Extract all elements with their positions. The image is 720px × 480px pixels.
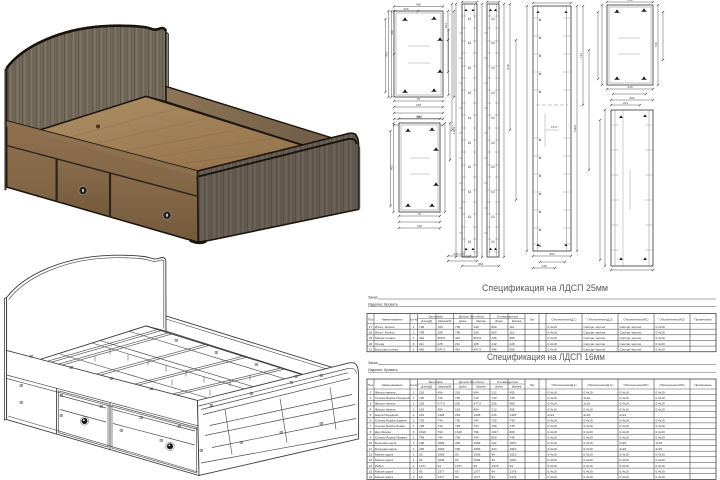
svg-text:744: 744 <box>438 396 443 400</box>
svg-text:Большая царга: Большая царга <box>375 441 397 445</box>
svg-text:Царга Передняя: Царга Передняя <box>375 413 399 417</box>
svg-text:0,4х19: 0,4х19 <box>656 436 665 440</box>
svg-text:Смотри чертеж: Смотри чертеж <box>620 325 642 329</box>
svg-text:963: 963 <box>549 252 554 256</box>
svg-text:0,4х19: 0,4х19 <box>584 424 593 428</box>
svg-text:219: 219 <box>455 413 460 417</box>
svg-text:425: 425 <box>438 342 443 346</box>
svg-text:0,4х19: 0,4х19 <box>548 336 557 340</box>
svg-text:0,4х19: 0,4х19 <box>656 452 665 456</box>
svg-text:0,4х19: 0,4х19 <box>620 390 629 394</box>
svg-text:1909: 1909 <box>474 452 481 456</box>
svg-text:1910: 1910 <box>510 447 517 451</box>
svg-text:Ширина(W): Ширина(W) <box>438 386 451 389</box>
svg-text:219: 219 <box>455 407 460 411</box>
svg-text:Дно Ящика: Дно Ящика <box>375 430 391 434</box>
svg-text:455: 455 <box>510 407 515 411</box>
svg-text:Смотри чертеж: Смотри чертеж <box>584 342 606 346</box>
svg-text:0,4х19: 0,4х19 <box>548 390 557 394</box>
svg-text:799: 799 <box>455 436 460 440</box>
svg-text:1617: 1617 <box>492 430 499 434</box>
svg-text:0,4х19: 0,4х19 <box>656 419 665 423</box>
svg-text:745: 745 <box>510 396 515 400</box>
svg-text:1: 1 <box>413 436 415 440</box>
svg-text:418: 418 <box>417 224 422 228</box>
svg-text:0,4х19: 0,4х19 <box>620 430 629 434</box>
svg-text:93: 93 <box>419 475 423 479</box>
svg-text:0,4х19: 0,4х19 <box>548 342 557 346</box>
svg-text:109: 109 <box>474 330 479 334</box>
svg-text:446: 446 <box>492 336 497 340</box>
svg-text:2х19: 2х19 <box>620 441 627 445</box>
svg-text:0,4х19: 0,4х19 <box>584 436 593 440</box>
svg-text:Заказ:: Заказ: <box>368 296 378 300</box>
svg-text:446: 446 <box>492 347 497 351</box>
svg-text:219: 219 <box>455 390 460 394</box>
svg-text:0,4х19: 0,4х19 <box>584 390 593 394</box>
svg-text:1909: 1909 <box>474 447 481 451</box>
svg-text:Поз: Поз <box>368 318 374 322</box>
svg-text:730: 730 <box>455 396 460 400</box>
svg-text:109: 109 <box>438 330 443 334</box>
svg-text:0,4х19: 0,4х19 <box>656 475 665 479</box>
svg-text:Стенка Ящика Правая: Стенка Ящика Правая <box>375 436 407 440</box>
svg-text:0,4х19: 0,4х19 <box>620 436 629 440</box>
svg-text:1: 1 <box>413 464 415 468</box>
svg-text:0,4х19: 0,4х19 <box>548 464 557 468</box>
svg-text:261: 261 <box>444 23 448 28</box>
svg-text:0,4х19: 0,4х19 <box>548 402 557 406</box>
svg-text:14: 14 <box>369 464 373 468</box>
svg-text:0,4х19: 0,4х19 <box>620 475 629 479</box>
svg-text:1: 1 <box>413 396 415 400</box>
svg-text:1: 1 <box>413 336 415 340</box>
svg-text:109: 109 <box>438 325 443 329</box>
svg-text:799: 799 <box>419 330 424 334</box>
svg-text:212: 212 <box>492 342 497 346</box>
svg-text:1428: 1428 <box>438 413 445 417</box>
svg-text:2: 2 <box>370 396 372 400</box>
svg-text:1: 1 <box>413 413 415 417</box>
svg-text:1426: 1426 <box>510 413 517 417</box>
svg-text:94: 94 <box>492 469 496 473</box>
svg-text:Длина: Длина <box>495 320 503 323</box>
svg-text:1378: 1378 <box>492 464 499 468</box>
svg-text:454: 454 <box>474 407 479 411</box>
svg-text:Обозначение(W2): Обозначение(W2) <box>659 318 684 322</box>
svg-text:730: 730 <box>492 396 497 400</box>
svg-text:Обозначение(Д,1): Обозначение(Д,1) <box>551 318 576 322</box>
svg-text:1428: 1428 <box>474 413 481 417</box>
svg-text:Примечание: Примечание <box>694 383 712 387</box>
svg-text:0,4х19: 0,4х19 <box>548 430 557 434</box>
svg-text:0,4х19: 0,4х19 <box>656 464 665 468</box>
svg-text:730: 730 <box>455 419 460 423</box>
svg-text:9: 9 <box>370 436 372 440</box>
svg-text:0,4х19: 0,4х19 <box>656 430 665 434</box>
svg-text:Готовая деталь: Готовая деталь <box>497 380 519 384</box>
svg-text:18: 18 <box>369 330 373 334</box>
svg-text:Большая царга: Большая царга <box>375 447 397 451</box>
svg-text:0,4х19: 0,4х19 <box>656 469 665 473</box>
svg-text:0,4х19: 0,4х19 <box>548 424 557 428</box>
svg-text:1910: 1910 <box>510 441 517 445</box>
svg-text:947,5: 947,5 <box>438 347 446 351</box>
svg-text:Стенка Ящика Левая: Стенка Ящика Левая <box>375 424 405 428</box>
svg-text:20: 20 <box>369 342 373 346</box>
svg-text:1616: 1616 <box>455 430 462 434</box>
svg-text:0,4х19: 0,4х19 <box>584 458 593 462</box>
svg-text:418: 418 <box>417 115 422 119</box>
svg-text:Фальш-панель: Фальш-панель <box>375 407 396 411</box>
svg-text:0,4х19: 0,4х19 <box>584 469 593 473</box>
svg-text:477,5: 477,5 <box>438 402 446 406</box>
svg-text:15: 15 <box>369 469 373 473</box>
svg-text:0,4х19: 0,4х19 <box>548 407 557 411</box>
svg-text:430: 430 <box>390 30 394 35</box>
svg-text:93: 93 <box>455 458 459 462</box>
svg-text:442: 442 <box>455 336 460 340</box>
svg-text:Малая царга: Малая царга <box>375 458 393 462</box>
svg-text:0,4х19: 0,4х19 <box>656 407 665 411</box>
svg-text:0,4х19: 0,4х19 <box>620 396 629 400</box>
svg-text:2х19: 2х19 <box>620 447 627 451</box>
svg-text:238: 238 <box>419 441 424 445</box>
svg-text:Обозначение(Д,2): Обозначение(Д,2) <box>587 383 612 387</box>
svg-text:6: 6 <box>370 419 372 423</box>
svg-text:11: 11 <box>369 447 372 451</box>
svg-text:442: 442 <box>455 347 460 351</box>
svg-text:906: 906 <box>510 336 515 340</box>
svg-text:1909: 1909 <box>573 125 577 132</box>
svg-text:2х19: 2х19 <box>548 413 555 417</box>
svg-text:219: 219 <box>419 413 424 417</box>
svg-text:Кол-во: Кол-во <box>410 319 418 322</box>
svg-text:903,5: 903,5 <box>438 336 446 340</box>
svg-text:1909: 1909 <box>438 452 445 456</box>
svg-text:0,4х19: 0,4х19 <box>620 419 629 423</box>
svg-text:1909: 1909 <box>474 458 481 462</box>
svg-text:744: 744 <box>474 419 479 423</box>
svg-text:219: 219 <box>419 390 424 394</box>
svg-text:1377: 1377 <box>438 469 445 473</box>
svg-text:212: 212 <box>492 390 497 394</box>
svg-text:1377: 1377 <box>419 464 426 468</box>
svg-text:Длина(Д): Длина(Д) <box>421 386 432 389</box>
svg-text:0,4х19: 0,4х19 <box>584 407 593 411</box>
svg-text:110: 110 <box>510 325 515 329</box>
svg-text:Малая царга: Малая царга <box>375 469 393 473</box>
svg-text:Изделие: Кровать: Изделие: Кровать <box>368 303 398 307</box>
svg-text:2х19: 2х19 <box>584 402 591 406</box>
svg-text:Деталь без облиц.: Деталь без облиц. <box>459 380 485 384</box>
svg-text:16: 16 <box>369 475 373 479</box>
svg-text:477,5: 477,5 <box>474 402 482 406</box>
svg-text:0,4х19: 0,4х19 <box>548 396 557 400</box>
svg-text:70: 70 <box>417 97 421 101</box>
svg-text:13: 13 <box>369 458 373 462</box>
svg-text:93: 93 <box>419 458 423 462</box>
svg-text:Обозначение(Д,2): Обозначение(Д,2) <box>587 318 612 322</box>
svg-text:7: 7 <box>370 424 372 428</box>
svg-text:109: 109 <box>474 325 479 329</box>
svg-text:746: 746 <box>654 42 658 47</box>
svg-text:Смотри чертеж: Смотри чертеж <box>620 347 642 351</box>
svg-text:224: 224 <box>492 447 497 451</box>
svg-text:Фальш-панель: Фальш-панель <box>375 390 396 394</box>
svg-text:93: 93 <box>474 464 478 468</box>
svg-text:70: 70 <box>418 212 422 216</box>
svg-text:0,4х19: 0,4х19 <box>620 402 629 406</box>
svg-text:Смотри чертеж: Смотри чертеж <box>620 342 642 346</box>
svg-text:744: 744 <box>474 396 479 400</box>
svg-text:Поз: Поз <box>368 383 374 387</box>
svg-text:1: 1 <box>413 430 415 434</box>
svg-text:1909: 1909 <box>438 447 445 451</box>
svg-text:745: 745 <box>510 424 515 428</box>
svg-text:Наименование: Наименование <box>382 383 403 387</box>
svg-text:455: 455 <box>510 390 515 394</box>
svg-text:0,4х19: 0,4х19 <box>548 441 557 445</box>
svg-text:1910: 1910 <box>510 452 517 456</box>
svg-text:226: 226 <box>492 402 497 406</box>
svg-text:1910: 1910 <box>510 458 517 462</box>
svg-text:2х19: 2х19 <box>620 413 627 417</box>
svg-text:Фальш-панель: Фальш-панель <box>375 402 396 406</box>
svg-text:94: 94 <box>492 458 496 462</box>
svg-text:0,4х19: 0,4х19 <box>656 347 665 351</box>
svg-text:454: 454 <box>438 390 443 394</box>
svg-text:947,5: 947,5 <box>474 347 482 351</box>
svg-text:211: 211 <box>455 342 460 346</box>
svg-text:1: 1 <box>413 447 415 451</box>
svg-text:93: 93 <box>455 475 459 479</box>
svg-text:1: 1 <box>413 325 415 329</box>
svg-text:94: 94 <box>492 475 496 479</box>
svg-text:0,4х19: 0,4х19 <box>584 452 593 456</box>
svg-text:2х19: 2х19 <box>584 413 591 417</box>
svg-text:1417: 1417 <box>551 125 558 129</box>
svg-text:744: 744 <box>438 424 443 428</box>
svg-text:1377: 1377 <box>438 475 445 479</box>
svg-text:0,4х19: 0,4х19 <box>548 452 557 456</box>
svg-text:93: 93 <box>455 469 459 473</box>
svg-text:10: 10 <box>369 441 373 445</box>
svg-text:Заказ:: Заказ: <box>368 361 378 365</box>
svg-text:17: 17 <box>369 325 373 329</box>
svg-text:Готовая деталь: Готовая деталь <box>497 315 519 319</box>
svg-text:Стенка Ящика Задняя: Стенка Ящика Задняя <box>375 419 407 423</box>
svg-text:93: 93 <box>419 469 423 473</box>
svg-text:2х19: 2х19 <box>584 396 591 400</box>
svg-text:2х19: 2х19 <box>656 441 663 445</box>
svg-text:454: 454 <box>438 407 443 411</box>
svg-text:242: 242 <box>492 441 497 445</box>
svg-text:Обозначение(W1): Обозначение(W1) <box>623 318 648 322</box>
svg-text:1909: 1909 <box>474 441 481 445</box>
svg-text:Смотри чертеж: Смотри чертеж <box>620 330 642 334</box>
svg-text:730: 730 <box>492 419 497 423</box>
svg-text:442: 442 <box>419 336 424 340</box>
svg-text:0,4х19: 0,4х19 <box>620 464 629 468</box>
svg-text:Смотри чертеж: Смотри чертеж <box>620 336 642 340</box>
svg-text:0,4х19: 0,4х19 <box>548 469 557 473</box>
svg-text:799: 799 <box>419 424 424 428</box>
svg-text:799: 799 <box>438 430 443 434</box>
svg-text:799: 799 <box>455 325 460 329</box>
svg-text:430: 430 <box>627 85 632 89</box>
svg-text:799: 799 <box>474 430 479 434</box>
svg-text:Длина: Длина <box>459 320 467 323</box>
svg-text:Ширина(W): Ширина(W) <box>438 320 451 323</box>
svg-text:Стенка Ящика Передняя: Стенка Ящика Передняя <box>375 396 411 400</box>
svg-text:1909: 1909 <box>438 441 445 445</box>
svg-text:Смотри чертеж: Смотри чертеж <box>584 325 606 329</box>
svg-text:799: 799 <box>492 424 497 428</box>
svg-text:0,4х19: 0,4х19 <box>656 330 665 334</box>
svg-text:522: 522 <box>629 96 634 100</box>
svg-text:2х19: 2х19 <box>656 447 663 451</box>
svg-text:225: 225 <box>455 402 460 406</box>
svg-text:Смотри чертеж: Смотри чертеж <box>584 336 606 340</box>
svg-text:426: 426 <box>510 342 515 346</box>
svg-text:Длина: Длина <box>459 386 467 389</box>
svg-text:Малая царга: Малая царга <box>375 475 393 479</box>
svg-text:Ширина: Ширина <box>476 320 486 323</box>
svg-text:0,4х19: 0,4х19 <box>656 342 665 346</box>
svg-text:Заготовка: Заготовка <box>429 380 443 384</box>
svg-text:963: 963 <box>478 262 483 266</box>
svg-text:Заготовка: Заготовка <box>429 315 443 319</box>
svg-text:0,4х19: 0,4х19 <box>584 430 593 434</box>
svg-text:0,4х19: 0,4х19 <box>548 325 557 329</box>
svg-text:0,4х19: 0,4х19 <box>620 424 629 428</box>
svg-text:800: 800 <box>492 325 497 329</box>
svg-text:94: 94 <box>510 464 514 468</box>
svg-text:Ширина: Ширина <box>512 320 522 323</box>
svg-text:1909: 1909 <box>452 127 456 134</box>
svg-text:1377: 1377 <box>474 469 481 473</box>
svg-text:425: 425 <box>474 342 479 346</box>
svg-text:0,4х19: 0,4х19 <box>548 419 557 423</box>
svg-text:450: 450 <box>627 0 632 2</box>
svg-text:730: 730 <box>419 396 424 400</box>
svg-text:442: 442 <box>419 347 424 351</box>
svg-text:212: 212 <box>492 407 497 411</box>
svg-text:799: 799 <box>455 330 460 334</box>
svg-text:93: 93 <box>419 452 423 456</box>
svg-text:0,4х19: 0,4х19 <box>584 464 593 468</box>
svg-text:0,4х19: 0,4х19 <box>656 458 665 462</box>
svg-text:225: 225 <box>419 402 424 406</box>
svg-text:1378: 1378 <box>510 475 517 479</box>
svg-text:0,4х19: 0,4х19 <box>548 447 557 451</box>
svg-text:Изделие: Кровать: Изделие: Кровать <box>368 368 398 372</box>
svg-text:Наименование: Наименование <box>382 318 403 322</box>
svg-text:1: 1 <box>413 419 415 423</box>
svg-text:0,4х19: 0,4х19 <box>656 396 665 400</box>
svg-text:799: 799 <box>419 436 424 440</box>
svg-text:238: 238 <box>455 441 460 445</box>
svg-text:1909: 1909 <box>438 458 445 462</box>
svg-text:0,4х19: 0,4х19 <box>548 458 557 462</box>
svg-text:Опора: Опора <box>375 342 384 346</box>
svg-text:Изгол. Колесо: Изгол. Колесо <box>375 330 395 334</box>
svg-text:Ширина: Ширина <box>512 386 522 389</box>
svg-text:19: 19 <box>369 336 373 340</box>
svg-text:3: 3 <box>370 402 372 406</box>
svg-text:Обозначение(W1): Обозначение(W1) <box>623 383 648 387</box>
svg-text:0,4х19: 0,4х19 <box>584 441 593 445</box>
svg-text:446 X10: 446 X10 <box>453 252 465 256</box>
svg-text:Примечание: Примечание <box>694 318 712 322</box>
svg-text:730: 730 <box>419 419 424 423</box>
svg-text:0,4х19: 0,4х19 <box>548 475 557 479</box>
svg-text:0,4х19: 0,4х19 <box>656 336 665 340</box>
svg-text:Смотри чертеж: Смотри чертеж <box>584 330 606 334</box>
svg-text:93: 93 <box>455 452 459 456</box>
svg-text:745: 745 <box>510 419 515 423</box>
svg-text:5: 5 <box>370 413 372 417</box>
svg-text:1: 1 <box>413 441 415 445</box>
svg-text:0,4х19: 0,4х19 <box>656 424 665 428</box>
svg-text:0,4х19: 0,4х19 <box>620 458 629 462</box>
svg-text:1616: 1616 <box>419 430 426 434</box>
svg-text:0,4х19: 0,4х19 <box>584 447 593 451</box>
svg-text:Большая стенка: Большая стенка <box>375 347 398 351</box>
svg-text:1: 1 <box>413 342 415 346</box>
svg-text:1: 1 <box>413 330 415 334</box>
svg-text:160: 160 <box>416 103 421 107</box>
svg-text:0,4х19: 0,4х19 <box>548 330 557 334</box>
svg-text:446: 446 <box>541 264 546 268</box>
svg-text:230: 230 <box>419 447 424 451</box>
svg-text:Длина(Д): Длина(Д) <box>421 320 432 323</box>
svg-text:0,4х19: 0,4х19 <box>656 390 665 394</box>
svg-text:744: 744 <box>474 424 479 428</box>
svg-text:1: 1 <box>413 390 415 394</box>
svg-text:800: 800 <box>510 430 515 434</box>
svg-text:800: 800 <box>492 436 497 440</box>
svg-text:110: 110 <box>510 330 515 334</box>
svg-text:903,5: 903,5 <box>474 336 482 340</box>
svg-text:1: 1 <box>413 424 415 428</box>
svg-text:12: 12 <box>369 452 373 456</box>
svg-text:8: 8 <box>370 430 372 434</box>
svg-text:450: 450 <box>416 3 421 7</box>
svg-text:215: 215 <box>492 413 497 417</box>
svg-text:2: 2 <box>413 469 415 473</box>
svg-text:1377: 1377 <box>474 475 481 479</box>
svg-text:Смотри чертеж: Смотри чертеж <box>584 347 606 351</box>
svg-text:480: 480 <box>510 402 515 406</box>
svg-text:861: 861 <box>390 165 394 170</box>
svg-text:454: 454 <box>474 390 479 394</box>
svg-text:0,4х19: 0,4х19 <box>656 325 665 329</box>
svg-text:4: 4 <box>370 407 372 411</box>
svg-text:861: 861 <box>385 51 389 56</box>
svg-text:93: 93 <box>438 464 442 468</box>
svg-text:0,4х19: 0,4х19 <box>584 475 593 479</box>
svg-text:1377: 1377 <box>455 464 462 468</box>
svg-text:Спецификация на ЛДСП 25мм: Спецификация на ЛДСП 25мм <box>482 283 608 293</box>
svg-text:0,4х19: 0,4х19 <box>656 402 665 406</box>
svg-text:799: 799 <box>455 424 460 428</box>
svg-text:226: 226 <box>403 7 408 11</box>
svg-text:94: 94 <box>492 452 496 456</box>
svg-text:Обозначение(W2): Обозначение(W2) <box>659 383 684 387</box>
svg-text:Спецификация на ЛДСП 16мм: Спецификация на ЛДСП 16мм <box>487 352 605 362</box>
